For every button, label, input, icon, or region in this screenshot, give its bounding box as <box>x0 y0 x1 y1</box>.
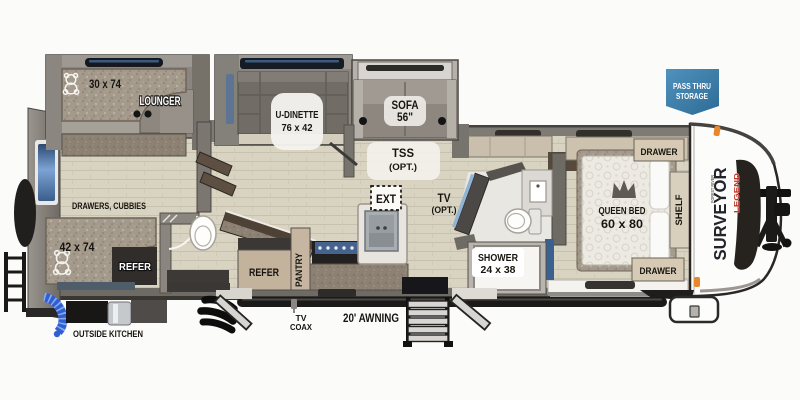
svg-text:76 x 42: 76 x 42 <box>282 122 313 134</box>
svg-text:56": 56" <box>397 112 413 124</box>
svg-text:TSS: TSS <box>392 146 414 160</box>
svg-text:SOFA: SOFA <box>392 100 419 112</box>
svg-text:STORAGE: STORAGE <box>676 91 708 101</box>
svg-text:QUEEN BED: QUEEN BED <box>599 206 646 217</box>
svg-text:SHOWER: SHOWER <box>478 252 518 264</box>
svg-text:TV: TV <box>296 314 308 323</box>
svg-text:60 x 80: 60 x 80 <box>601 219 643 231</box>
svg-text:FOREST RIVER: FOREST RIVER <box>710 174 715 203</box>
svg-text:COAX: COAX <box>290 323 313 332</box>
svg-text:DRAWER: DRAWER <box>640 266 677 277</box>
svg-text:EXT: EXT <box>376 194 396 206</box>
svg-text:SHELF: SHELF <box>674 194 685 225</box>
svg-text:30 x 74: 30 x 74 <box>89 79 121 91</box>
svg-text:42 x 74: 42 x 74 <box>60 240 95 254</box>
svg-text:(OPT.): (OPT.) <box>389 162 417 173</box>
svg-text:DRAWERS, CUBBIES: DRAWERS, CUBBIES <box>72 201 146 212</box>
svg-text:OUTSIDE KITCHEN: OUTSIDE KITCHEN <box>73 329 143 340</box>
svg-text:U-DINETTE: U-DINETTE <box>276 109 319 121</box>
svg-text:LOUNGER: LOUNGER <box>140 96 181 108</box>
svg-text:REFER: REFER <box>249 267 279 279</box>
svg-text:REFER: REFER <box>119 262 152 273</box>
svg-text:24 x 38: 24 x 38 <box>481 264 516 276</box>
svg-text:PANTRY: PANTRY <box>294 252 305 287</box>
svg-text:20' AWNING: 20' AWNING <box>343 313 399 325</box>
svg-text:LEGEND: LEGEND <box>732 172 741 213</box>
svg-text:DRAWER: DRAWER <box>641 147 678 158</box>
svg-text:(OPT.): (OPT.) <box>432 205 457 216</box>
svg-text:TV: TV <box>438 191 451 205</box>
svg-text:PASS THRU: PASS THRU <box>673 81 711 91</box>
